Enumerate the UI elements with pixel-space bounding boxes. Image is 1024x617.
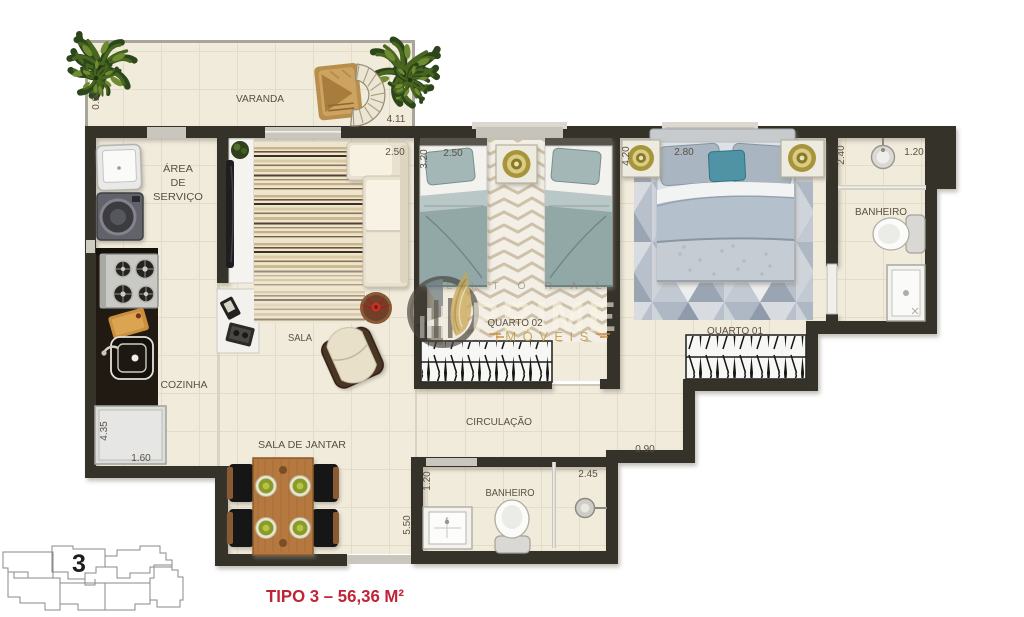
svg-text:SALA: SALA (288, 332, 312, 344)
svg-text:CIRCULAÇÃO: CIRCULAÇÃO (466, 415, 532, 428)
svg-text:0.91: 0.91 (91, 90, 102, 110)
svg-text:1.20: 1.20 (422, 471, 433, 491)
svg-text:1.60: 1.60 (131, 453, 151, 464)
svg-text:3: 3 (72, 550, 86, 578)
svg-text:SERVIÇO: SERVIÇO (153, 192, 203, 203)
svg-text:BANHEIRO: BANHEIRO (486, 487, 535, 499)
svg-text:2.50: 2.50 (443, 148, 463, 159)
svg-text:2.45: 2.45 (578, 469, 598, 480)
svg-text:L I T O R A L: L I T O R A L (446, 280, 609, 292)
svg-text:4.11: 4.11 (387, 114, 406, 125)
svg-text:QUARTO 02: QUARTO 02 (488, 317, 543, 329)
svg-text:QUARTO 01: QUARTO 01 (707, 325, 763, 337)
svg-text:0.90: 0.90 (635, 444, 655, 455)
svg-text:5.50: 5.50 (402, 515, 413, 535)
svg-text:2.80: 2.80 (674, 147, 694, 158)
svg-text:1.20: 1.20 (904, 147, 924, 158)
svg-text:2.50: 2.50 (385, 147, 405, 158)
svg-text:4.35: 4.35 (99, 421, 110, 441)
svg-text:TIPO 3 – 56,36 M²: TIPO 3 – 56,36 M² (266, 586, 404, 606)
svg-text:IMÓVEIS: IMÓVEIS (495, 329, 595, 344)
svg-text:BANHEIRO: BANHEIRO (855, 206, 907, 218)
svg-text:ÁREA: ÁREA (163, 162, 193, 175)
svg-text:DE: DE (171, 178, 186, 189)
svg-text:4.20: 4.20 (621, 146, 632, 166)
svg-text:3.20: 3.20 (419, 149, 430, 169)
svg-text:c: c (446, 517, 449, 523)
svg-text:COZINHA: COZINHA (161, 379, 208, 391)
svg-text:VARANDA: VARANDA (236, 93, 284, 105)
svg-text:SALA DE JANTAR: SALA DE JANTAR (258, 439, 346, 451)
svg-text:2.40: 2.40 (836, 145, 847, 165)
